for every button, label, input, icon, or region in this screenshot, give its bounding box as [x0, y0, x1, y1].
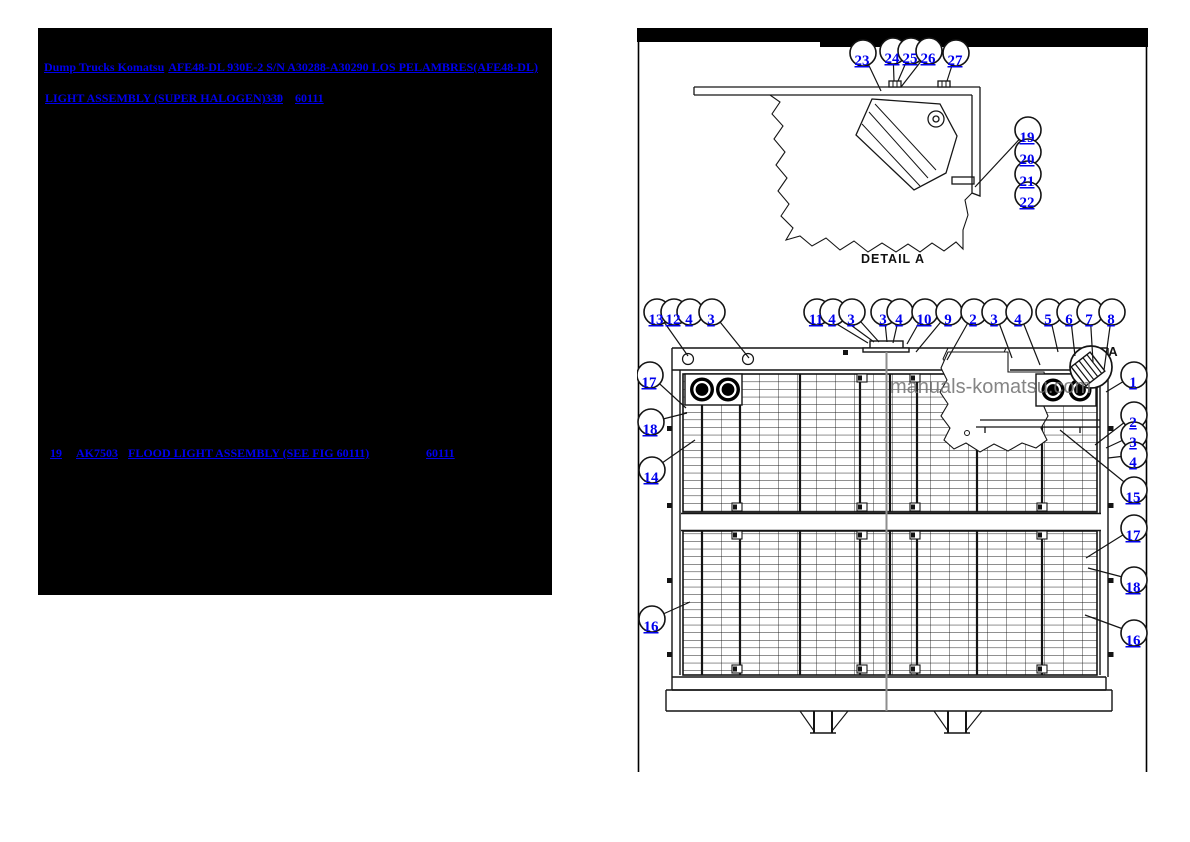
callout-main_left-18[interactable]: 18: [643, 422, 658, 438]
parts-list-panel: Dump Trucks KomatsuAFE48-DL 930E-2 S/N A…: [38, 28, 552, 595]
callout-detail_right-19[interactable]: 19: [1020, 130, 1035, 146]
callout-detail_right-21[interactable]: 21: [1020, 174, 1035, 190]
detail-a-label: DETAIL A: [861, 252, 925, 266]
callout-main_top-4[interactable]: 4: [828, 312, 836, 328]
base-channel-and-legs: [666, 677, 1112, 733]
callout-main_top-3[interactable]: 3: [990, 312, 998, 328]
callout-detail_top-27[interactable]: 27: [948, 53, 964, 69]
part-item-number-link[interactable]: 19: [50, 446, 62, 461]
callout-main_top-4[interactable]: 4: [895, 312, 903, 328]
callout-main_top-4[interactable]: 4: [685, 312, 693, 328]
callout-detail_right-22[interactable]: 22: [1020, 195, 1035, 211]
callout-main_left-17[interactable]: 17: [642, 375, 658, 391]
callout-main_top-6[interactable]: 6: [1065, 312, 1073, 328]
assembly-sheet-link[interactable]: 330: [265, 91, 283, 106]
assembly-header-row: LIGHT ASSEMBLY (SUPER HALOGEN) - 1 330 6…: [38, 91, 552, 107]
callout-detail_top-25[interactable]: 25: [903, 51, 918, 67]
diagram-svg: DETAIL A: [637, 28, 1148, 772]
callout-main_right-4[interactable]: 4: [1129, 455, 1137, 471]
callout-main_top-3[interactable]: 3: [879, 312, 887, 328]
callout-main_top-12[interactable]: 12: [666, 312, 681, 328]
callout-main_right-1[interactable]: 1: [1129, 375, 1137, 391]
callout-main_top-11[interactable]: 11: [809, 312, 823, 328]
callout-main_right-18[interactable]: 18: [1126, 580, 1141, 596]
breadcrumb-link-model[interactable]: AFE48-DL 930E-2 S/N A30288-A30290 LOS PE…: [168, 60, 538, 74]
callout-main_right-15[interactable]: 15: [1126, 490, 1141, 506]
diagram-page: DETAIL A: [637, 28, 1148, 772]
part-figure-link[interactable]: 60111: [426, 446, 455, 461]
callout-main_top-2[interactable]: 2: [969, 312, 977, 328]
breadcrumb-link-category[interactable]: Dump Trucks Komatsu: [44, 60, 164, 74]
callout-main_right-2[interactable]: 2: [1129, 415, 1137, 431]
callout-main_top-5[interactable]: 5: [1044, 312, 1052, 328]
assembly-title-link[interactable]: LIGHT ASSEMBLY (SUPER HALOGEN) - 1: [45, 91, 282, 106]
callout-main_top-3[interactable]: 3: [847, 312, 855, 328]
callout-main_top-13[interactable]: 13: [649, 312, 664, 328]
part-description-link[interactable]: FLOOD LIGHT ASSEMBLY (SEE FIG 60111): [128, 446, 369, 461]
callout-main_right-16[interactable]: 16: [1126, 633, 1142, 649]
callout-detail_top-23[interactable]: 23: [855, 53, 870, 69]
part-qty-link[interactable]: 1: [354, 446, 360, 461]
callout-detail_top-26[interactable]: 26: [921, 51, 937, 67]
callout-main_top-10[interactable]: 10: [917, 312, 932, 328]
callout-main_top-7[interactable]: 7: [1085, 312, 1093, 328]
callout-main_left-14[interactable]: 14: [644, 470, 660, 486]
callout-main_top-4[interactable]: 4: [1014, 312, 1022, 328]
callout-detail_right-20[interactable]: 20: [1020, 152, 1035, 168]
callout-main_right-3[interactable]: 3: [1129, 435, 1137, 451]
detail-a-marker-label: A: [1108, 344, 1118, 359]
page-canvas: Dump Trucks KomatsuAFE48-DL 930E-2 S/N A…: [0, 0, 1190, 842]
part-number-link[interactable]: AK7503: [76, 446, 118, 461]
breadcrumb: Dump Trucks KomatsuAFE48-DL 930E-2 S/N A…: [44, 60, 550, 74]
callout-main_top-8[interactable]: 8: [1107, 312, 1115, 328]
table-row: 19 AK7503 FLOOD LIGHT ASSEMBLY (SEE FIG …: [38, 446, 552, 462]
callout-main_top-9[interactable]: 9: [944, 312, 952, 328]
detail-a-drawing: [694, 81, 980, 252]
callout-main_top-3[interactable]: 3: [707, 312, 715, 328]
callout-main_left-16[interactable]: 16: [644, 619, 660, 635]
flood-light-pair-left: [685, 374, 742, 405]
assembly-figure-link[interactable]: 60111: [295, 91, 324, 106]
callout-main_right-17[interactable]: 17: [1126, 528, 1142, 544]
middle-divider-band: [681, 514, 1101, 531]
watermark: manuals-komatsu.com: [890, 376, 1091, 398]
callout-detail_top-24[interactable]: 24: [885, 51, 901, 67]
